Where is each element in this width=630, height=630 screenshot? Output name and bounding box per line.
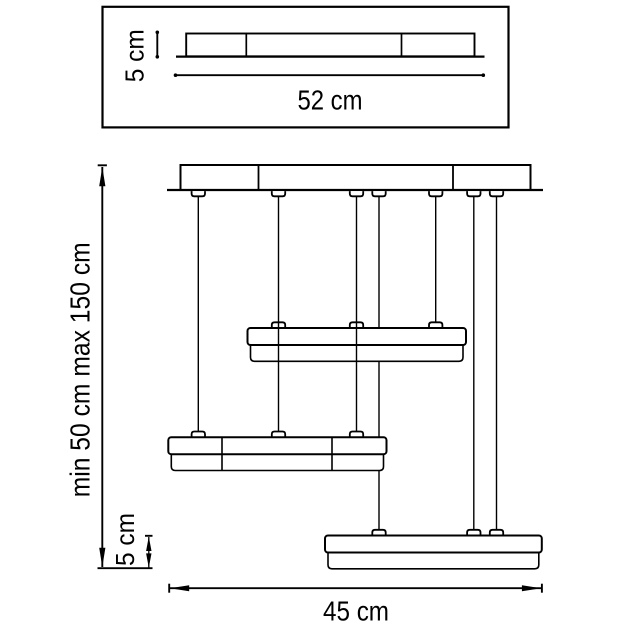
svg-text:45 cm: 45 cm	[323, 596, 389, 627]
svg-text:5 cm: 5 cm	[110, 513, 140, 566]
svg-text:5 cm: 5 cm	[119, 29, 149, 82]
svg-text:min 50 cm max 150 cm: min 50 cm max 150 cm	[65, 242, 96, 497]
svg-text:52 cm: 52 cm	[298, 84, 363, 115]
